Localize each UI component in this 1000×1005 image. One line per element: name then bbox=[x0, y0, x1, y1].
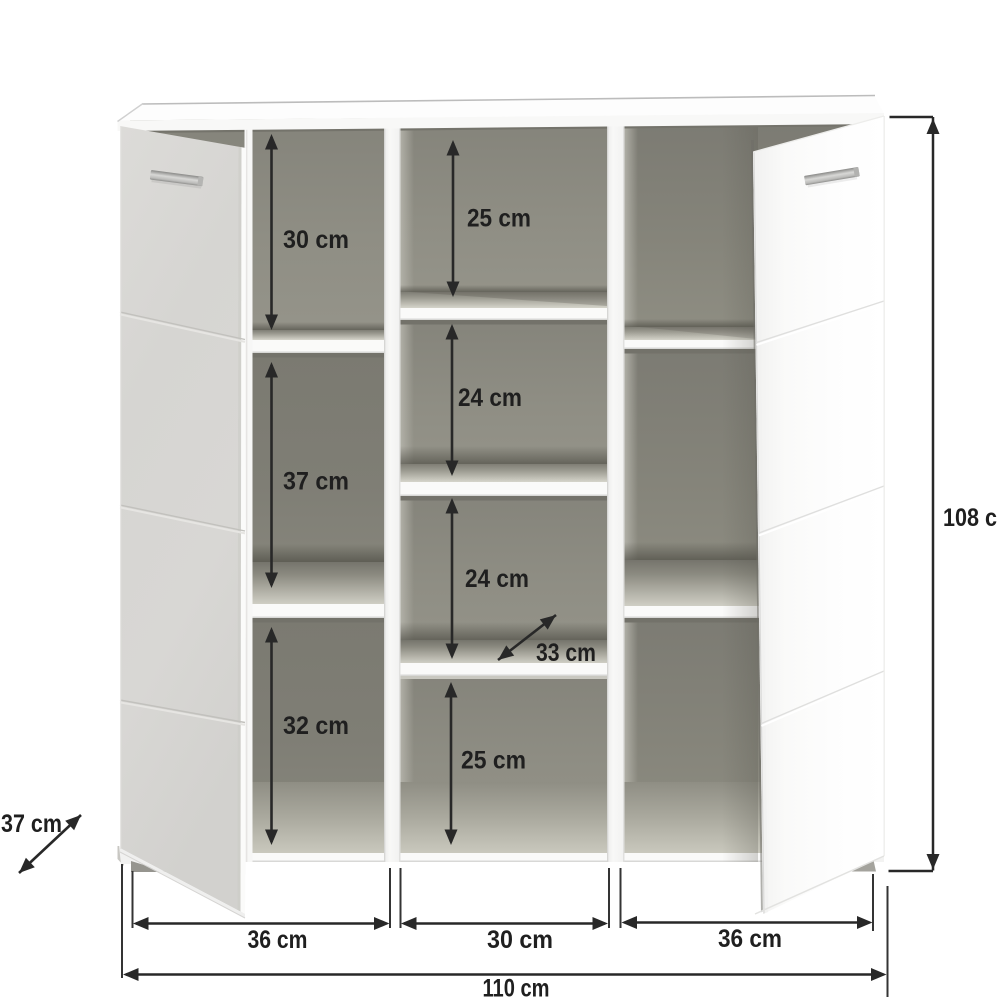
svg-text:37 cm: 37 cm bbox=[283, 468, 349, 496]
svg-text:108 c: 108 c bbox=[943, 504, 997, 532]
svg-text:37 cm: 37 cm bbox=[1, 810, 62, 838]
svg-text:25 cm: 25 cm bbox=[467, 205, 531, 233]
svg-text:36 cm: 36 cm bbox=[248, 926, 308, 954]
svg-text:25 cm: 25 cm bbox=[461, 747, 526, 775]
svg-text:24 cm: 24 cm bbox=[465, 565, 529, 593]
svg-text:30 cm: 30 cm bbox=[487, 926, 553, 954]
svg-text:36 cm: 36 cm bbox=[718, 925, 782, 953]
svg-text:30 cm: 30 cm bbox=[283, 226, 349, 254]
svg-text:33 cm: 33 cm bbox=[536, 639, 596, 667]
svg-text:32 cm: 32 cm bbox=[283, 712, 349, 740]
svg-text:24 cm: 24 cm bbox=[458, 384, 522, 412]
svg-text:110 cm: 110 cm bbox=[483, 975, 550, 1001]
